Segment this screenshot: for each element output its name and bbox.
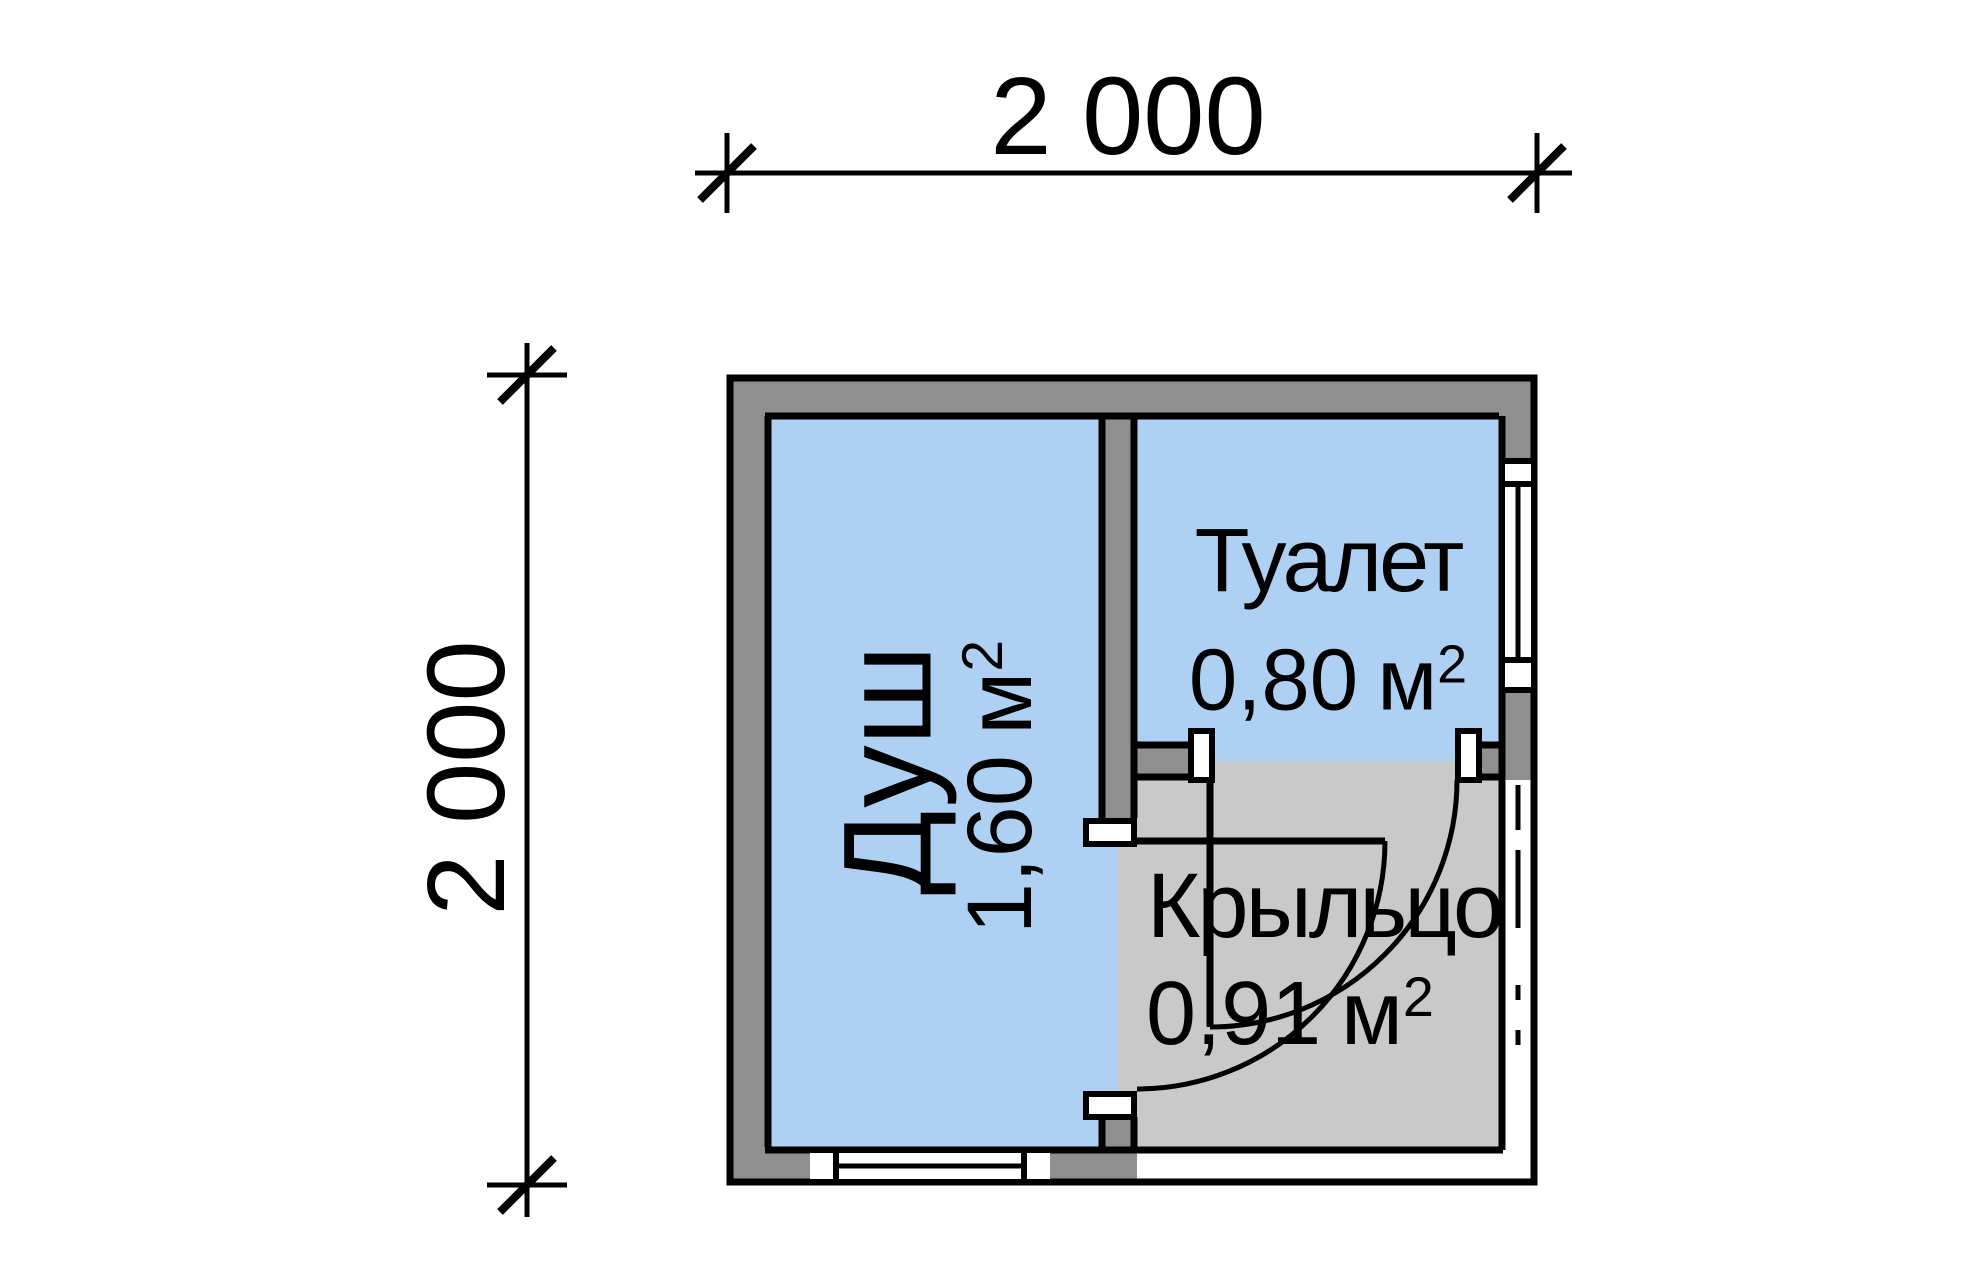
porch-room-label: Крыльцо xyxy=(1147,860,1501,952)
porch-area-exponent: 2 xyxy=(1403,965,1434,1028)
left-dimension-label: 2 000 xyxy=(412,640,522,915)
shower-area-exponent: 2 xyxy=(951,640,1015,672)
shower-door-jamb-bottom xyxy=(1086,1094,1134,1117)
toilet-door-jamb-left xyxy=(1191,731,1212,780)
porch-area-label: 0,91м2 xyxy=(1146,969,1434,1059)
shower-door-opening-floor xyxy=(1099,844,1118,1091)
toilet-area-unit: м xyxy=(1377,632,1437,729)
toilet-room-label: Туалет xyxy=(1195,516,1462,606)
toilet-door-jamb-right xyxy=(1458,731,1479,780)
toilet-area-label: 0,80м2 xyxy=(1189,637,1467,724)
floor-plan-drawing xyxy=(0,0,1978,1272)
floor-plan-page: 2 000 2 000 Душ 1,60м2 Туалет 0,80м2 Кры… xyxy=(0,0,1978,1272)
toilet-area-exponent: 2 xyxy=(1437,635,1467,695)
top-dimension-label: 2 000 xyxy=(990,62,1265,172)
shower-area-unit: м xyxy=(949,672,1051,735)
porch-area-value: 0,91 xyxy=(1146,964,1321,1064)
shower-room-label: Душ xyxy=(826,645,951,895)
shower-area-label: 1,60м2 xyxy=(954,640,1046,934)
shower-door-jamb-top xyxy=(1086,821,1134,844)
porch-area-unit: м xyxy=(1341,964,1403,1064)
toilet-area-value: 0,80 xyxy=(1189,632,1358,729)
toilet-door-opening-floor xyxy=(1212,742,1455,761)
shower-area-value: 1,60 xyxy=(949,755,1051,934)
